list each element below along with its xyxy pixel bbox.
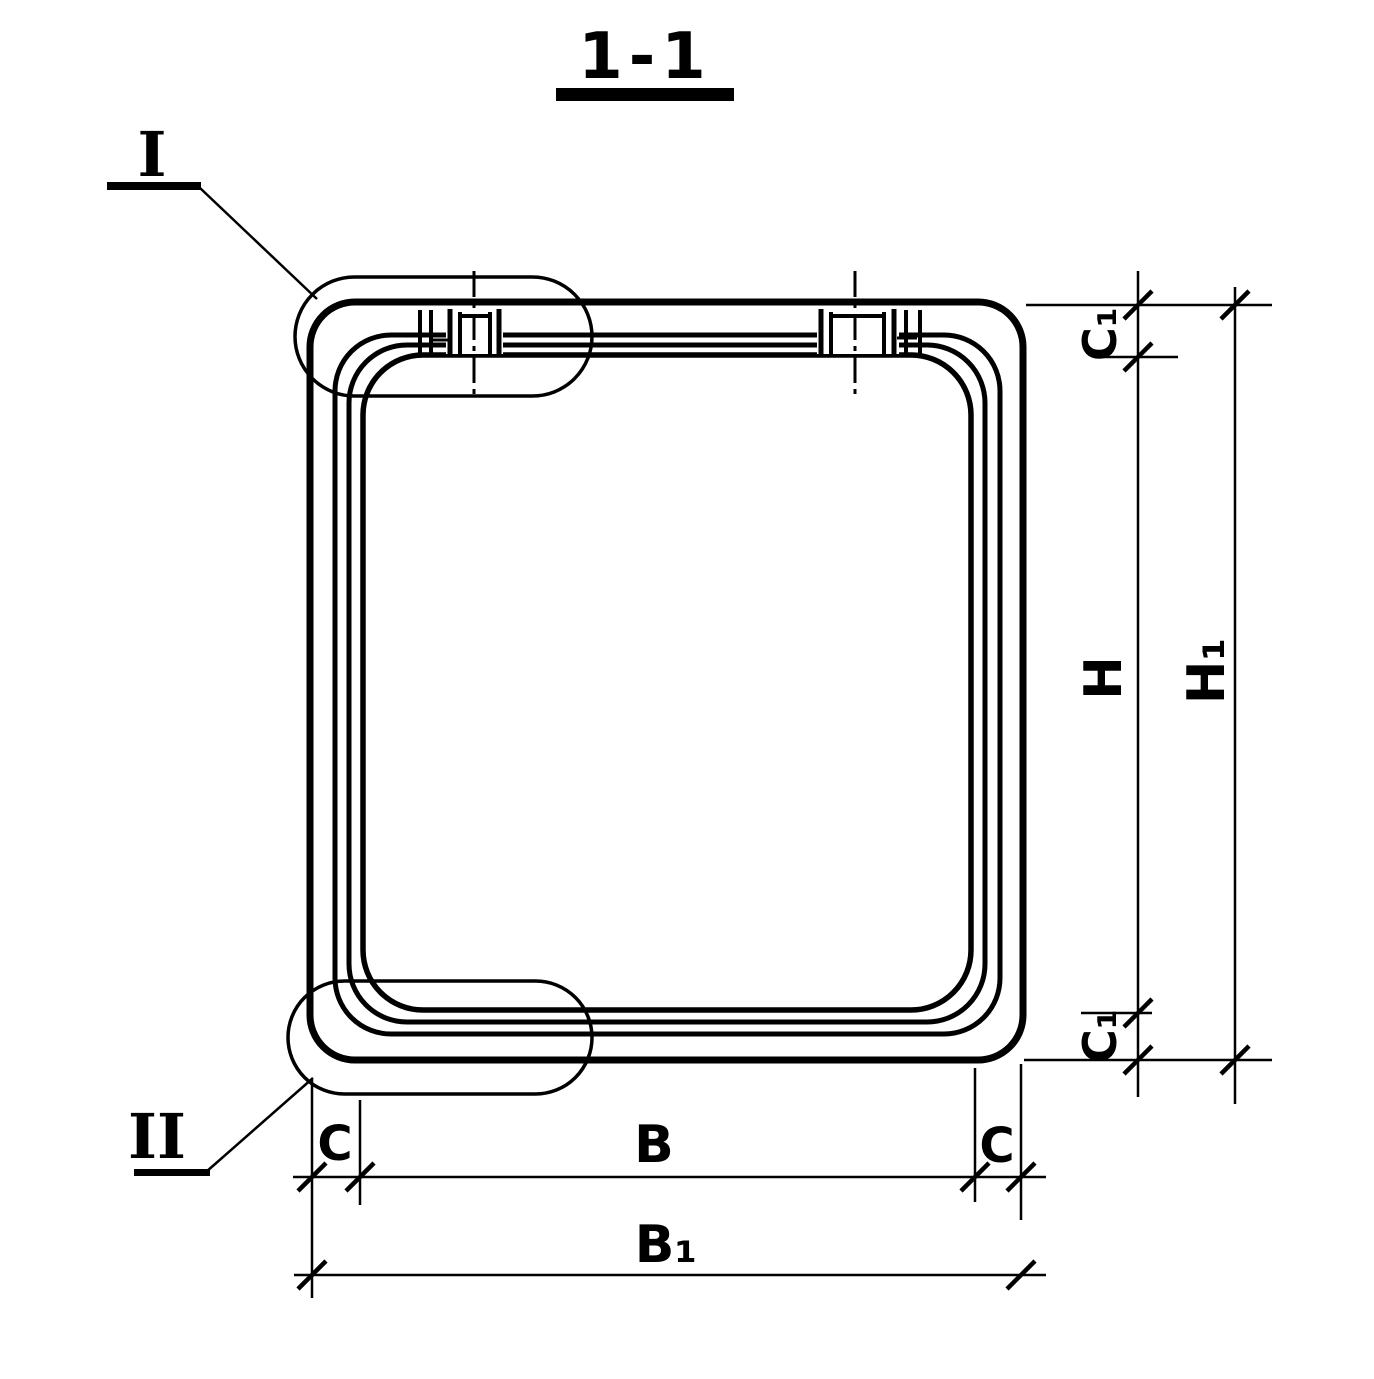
section-title: 1-1	[578, 20, 712, 94]
detail-II-leader	[206, 1078, 313, 1172]
dim-label-C1-bottom: C₁	[1073, 1009, 1127, 1063]
box-section	[310, 302, 1023, 1060]
dim-label-H: H	[1074, 656, 1134, 700]
detail-II-label: II	[128, 1100, 186, 1173]
detail-I-leader	[200, 188, 317, 299]
section-drawing: 1-1 I II C₁ H C₁ H₁ C B C B₁	[0, 0, 1374, 1379]
outer-shell-outline	[310, 302, 1023, 1060]
section-title-underline	[556, 88, 734, 101]
detail-I-label: I	[137, 118, 166, 191]
dim-label-C-right: C	[979, 1118, 1014, 1174]
inner-cavity-outline	[363, 355, 971, 1010]
dim-label-B: B	[634, 1115, 674, 1175]
inner-wall-line-outer	[335, 335, 1000, 1034]
dim-label-B1: B₁	[635, 1215, 697, 1275]
dim-label-H1: H₁	[1177, 638, 1237, 704]
detail-II-oval	[288, 981, 592, 1094]
inner-wall-line-middle	[349, 345, 985, 1022]
dim-label-C-left: C	[317, 1116, 352, 1172]
dim-label-C1-top: C₁	[1073, 307, 1127, 361]
